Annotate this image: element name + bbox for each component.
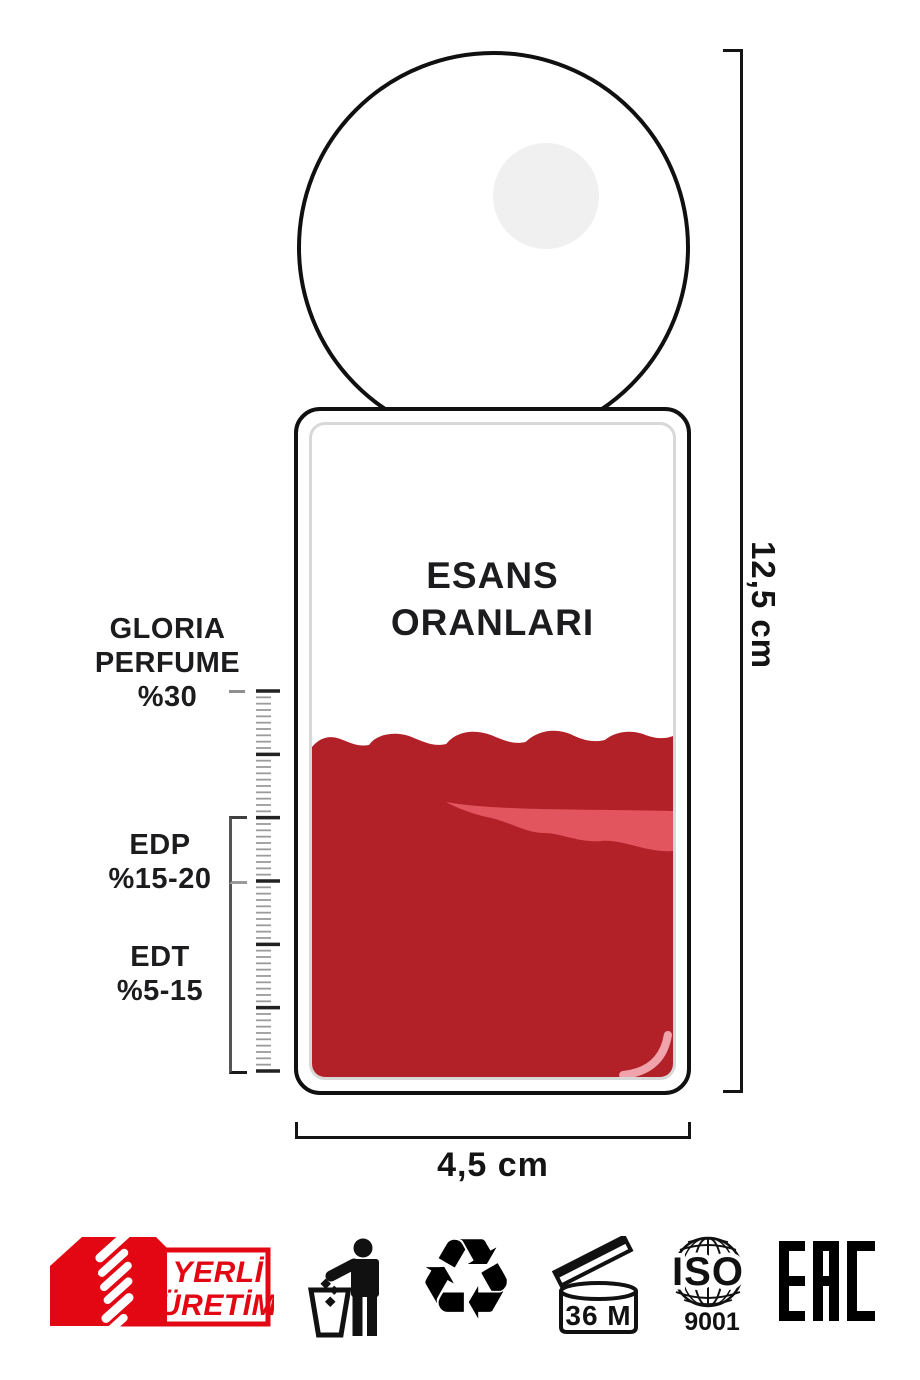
- edp-line2: %15-20: [80, 862, 240, 896]
- edp-line1: EDP: [80, 828, 240, 862]
- bottle-body: ESANS ORANLARI: [294, 407, 691, 1095]
- width-dimension-line: [295, 1136, 691, 1139]
- recycle-icon: ♻: [410, 1224, 522, 1340]
- bottle-title-line2: ORANLARI: [312, 599, 673, 646]
- edt-label: EDT %5-15: [80, 940, 240, 1008]
- period-after-opening-icon: 36 M: [544, 1236, 669, 1336]
- iso-9001-text: 9001: [684, 1308, 740, 1336]
- edp-label: EDP %15-20: [80, 828, 240, 896]
- yerli-text-line2: ÜRETİM: [159, 1289, 274, 1322]
- height-dimension-top-tick: [723, 49, 743, 52]
- iso-9001-logo: ISO ISO 9001: [664, 1232, 784, 1337]
- bottle-title: ESANS ORANLARI: [312, 552, 673, 646]
- edt-line1: EDT: [80, 940, 240, 974]
- height-dimension-line: [740, 49, 743, 1093]
- yerli-text-line1: YERLİ: [173, 1256, 265, 1289]
- width-dimension-label: 4,5 cm: [295, 1146, 691, 1185]
- liquid-illustration: [312, 725, 673, 1077]
- bottle-title-line1: ESANS: [312, 552, 673, 599]
- eac-logo: [779, 1240, 875, 1322]
- width-dimension-left-tick: [295, 1122, 298, 1139]
- gloria-line2: PERFUME: [80, 646, 255, 680]
- gloria-line3: %30: [80, 680, 255, 714]
- height-dimension-label: 12,5 cm: [744, 505, 782, 705]
- gloria-line1: GLORIA: [80, 612, 255, 646]
- pao-duration-label: 36 M: [565, 1300, 631, 1331]
- iso-text: ISO: [672, 1250, 744, 1294]
- gloria-perfume-label: GLORIA PERFUME %30: [80, 612, 255, 714]
- edt-line2: %5-15: [80, 974, 240, 1008]
- width-dimension-right-tick: [688, 1122, 691, 1139]
- cap-highlight: [493, 143, 599, 249]
- bottle-cap: [297, 51, 690, 444]
- bottle-label-area: ESANS ORANLARI: [309, 422, 676, 1080]
- tidy-man-icon: [306, 1238, 410, 1340]
- infographic-canvas: ESANS ORANLARI GLORIA PERFUME %30 EDP %1…: [0, 0, 920, 1380]
- yerli-uretim-badge: YERLİ ÜRETİM: [50, 1236, 274, 1336]
- liquid-body: [312, 731, 673, 1077]
- height-dimension-bottom-tick: [723, 1090, 743, 1093]
